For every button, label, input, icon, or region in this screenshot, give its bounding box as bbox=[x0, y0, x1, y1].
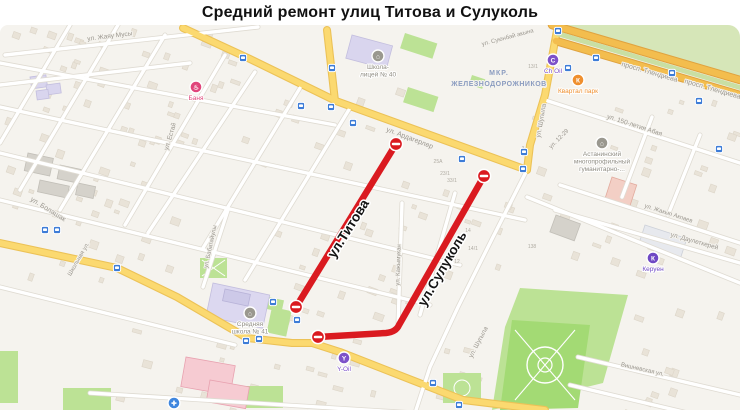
svg-text:⌂: ⌂ bbox=[600, 140, 604, 147]
building bbox=[91, 210, 99, 217]
building bbox=[30, 27, 38, 34]
bus-stop-icon[interactable] bbox=[242, 337, 249, 344]
map-label: ул. 150-летия Абая bbox=[606, 112, 664, 138]
map-label: 25А bbox=[434, 159, 444, 165]
building bbox=[115, 255, 124, 264]
no-entry-icon bbox=[477, 169, 490, 182]
map-label: ул. Суюнбай акына bbox=[481, 27, 535, 48]
bus-stop-icon[interactable] bbox=[458, 155, 465, 162]
building bbox=[651, 391, 660, 398]
green-patch bbox=[400, 33, 437, 59]
building bbox=[365, 229, 374, 237]
building bbox=[338, 291, 346, 300]
building bbox=[711, 100, 717, 107]
building bbox=[353, 339, 362, 345]
poi-keruen-label: Керуен bbox=[642, 266, 664, 273]
building bbox=[642, 348, 650, 356]
building bbox=[645, 157, 653, 165]
building bbox=[99, 277, 105, 283]
map-svg: ул. Ардагерлерпросп. Тлендиевапросп. Тле… bbox=[0, 25, 740, 410]
no-entry-icon bbox=[389, 137, 402, 150]
building bbox=[170, 216, 181, 226]
building bbox=[378, 274, 385, 281]
building bbox=[536, 166, 546, 176]
building bbox=[471, 219, 481, 227]
landmark-building bbox=[36, 89, 49, 100]
poi-school-40-label: Школа- bbox=[367, 64, 389, 71]
building bbox=[317, 311, 325, 317]
svg-text:✚: ✚ bbox=[171, 399, 177, 407]
bus-stop-icon[interactable] bbox=[349, 119, 356, 126]
bus-stop-icon[interactable] bbox=[519, 165, 526, 172]
building bbox=[165, 265, 174, 273]
bus-stop-icon[interactable] bbox=[327, 103, 334, 110]
poi-college-label: многопрофильный bbox=[574, 158, 631, 166]
building bbox=[138, 253, 145, 261]
map-label: 14/1 bbox=[468, 246, 478, 252]
poi-banya-label: Баня bbox=[189, 95, 204, 102]
svg-text:C: C bbox=[551, 57, 556, 64]
building bbox=[667, 109, 673, 115]
map-label: 33/1 bbox=[447, 178, 457, 184]
svg-text:♨: ♨ bbox=[193, 83, 199, 91]
poi-y-oil-label: Y-Oil bbox=[337, 366, 351, 373]
bus-stop-icon[interactable] bbox=[41, 226, 48, 233]
bus-stop-icon[interactable] bbox=[293, 316, 300, 323]
building bbox=[444, 348, 450, 354]
poi-school-41-label: Средняя bbox=[237, 321, 264, 328]
building bbox=[411, 204, 416, 209]
poi-poi-blue-icon[interactable]: ✚ bbox=[168, 397, 180, 409]
building bbox=[592, 243, 601, 249]
building bbox=[230, 79, 240, 86]
bus-stop-icon[interactable] bbox=[715, 145, 722, 152]
building bbox=[12, 31, 21, 39]
roads-layer bbox=[0, 25, 740, 410]
poi-school-41-label: школа № 41 bbox=[232, 329, 269, 336]
building bbox=[181, 132, 189, 138]
building bbox=[495, 264, 501, 271]
bus-stop-icon[interactable] bbox=[554, 27, 561, 34]
page-title: Средний ремонт улиц Титова и Сулуколь bbox=[0, 0, 740, 25]
poi-college-label: Астанинский bbox=[583, 150, 622, 158]
building bbox=[370, 390, 376, 397]
building bbox=[192, 138, 198, 145]
bus-stop-icon[interactable] bbox=[429, 379, 436, 386]
map-canvas[interactable]: ул. Ардагерлерпросп. Тлендиевапросп. Тле… bbox=[0, 25, 740, 410]
poi-kvartal-park-label: Квартал парк bbox=[558, 88, 598, 95]
road bbox=[0, 287, 235, 345]
building bbox=[210, 84, 218, 93]
building bbox=[55, 149, 65, 159]
green-patch bbox=[403, 87, 438, 112]
building bbox=[694, 171, 702, 177]
bus-stop-icon[interactable] bbox=[113, 264, 120, 271]
bus-stop-icon[interactable] bbox=[668, 69, 675, 76]
building bbox=[142, 51, 150, 58]
building bbox=[163, 53, 170, 61]
bus-stop-icon[interactable] bbox=[328, 64, 335, 71]
building bbox=[28, 273, 35, 281]
green-patch bbox=[267, 307, 292, 337]
building bbox=[401, 181, 409, 189]
road bbox=[0, 107, 525, 220]
building bbox=[333, 385, 344, 392]
map-label: ЖЕЛЕЗНОДОРОЖНИКОВ bbox=[450, 81, 546, 88]
bus-stop-icon[interactable] bbox=[564, 64, 571, 71]
no-entry-icon bbox=[289, 300, 302, 313]
building bbox=[60, 66, 67, 72]
poi-banya-icon[interactable]: ♨ bbox=[190, 81, 202, 93]
building bbox=[615, 107, 624, 113]
building bbox=[641, 167, 651, 177]
building bbox=[220, 358, 225, 363]
landmark-building bbox=[38, 180, 70, 198]
district-label: МКР.ЖЕЛЕЗНОДОРОЖНИКОВ bbox=[450, 70, 546, 88]
bus-stop-icon[interactable] bbox=[297, 102, 304, 109]
building bbox=[299, 265, 305, 270]
building bbox=[228, 60, 237, 66]
building bbox=[306, 366, 314, 372]
building bbox=[218, 81, 225, 88]
building bbox=[84, 100, 92, 108]
building bbox=[242, 136, 250, 144]
poi-college-label: гуманитарно-... bbox=[579, 166, 625, 173]
bus-stop-icon[interactable] bbox=[269, 298, 276, 305]
building bbox=[176, 387, 183, 393]
no-entry-icon bbox=[311, 330, 324, 343]
building bbox=[708, 184, 716, 193]
building bbox=[610, 145, 618, 150]
building bbox=[312, 248, 320, 257]
building bbox=[174, 112, 181, 119]
svg-text:⌂: ⌂ bbox=[248, 310, 252, 317]
poi-keruen-icon[interactable]: К bbox=[647, 252, 659, 264]
building bbox=[679, 100, 684, 105]
building bbox=[132, 328, 142, 334]
bus-stop-icon[interactable] bbox=[53, 226, 60, 233]
building bbox=[274, 364, 280, 370]
building bbox=[114, 210, 120, 214]
poi-school-41-icon[interactable]: ⌂ bbox=[244, 307, 256, 319]
poi-ch-oil-label: Ch Oil bbox=[544, 68, 563, 75]
building bbox=[360, 222, 367, 230]
building bbox=[43, 107, 50, 113]
building bbox=[717, 311, 725, 320]
building bbox=[395, 88, 405, 97]
map-label: 23/1 bbox=[440, 171, 450, 177]
screenshot-root: Средний ремонт улиц Титова и Сулуколь ул… bbox=[0, 0, 740, 410]
building bbox=[418, 212, 428, 220]
poi-school-40-label: лицей № 40 bbox=[360, 71, 397, 79]
building bbox=[542, 193, 552, 201]
poi-y-oil-icon[interactable]: Y bbox=[338, 352, 350, 364]
building bbox=[571, 251, 580, 260]
svg-text:К: К bbox=[576, 77, 580, 84]
building bbox=[611, 257, 621, 266]
bus-stop-icon[interactable] bbox=[592, 54, 599, 61]
building bbox=[76, 196, 83, 202]
building bbox=[465, 219, 471, 224]
building bbox=[318, 372, 327, 378]
poi-school-40-icon[interactable]: ⌂ bbox=[372, 50, 384, 62]
building bbox=[67, 33, 74, 41]
building bbox=[675, 309, 685, 319]
building bbox=[365, 125, 375, 131]
building bbox=[725, 246, 737, 256]
building bbox=[59, 261, 65, 267]
poi-ch-oil-icon[interactable]: C bbox=[547, 54, 559, 66]
bus-stop-icon[interactable] bbox=[455, 401, 462, 408]
map-label: МКР. bbox=[489, 70, 509, 77]
svg-text:К: К bbox=[651, 255, 655, 262]
svg-text:⌂: ⌂ bbox=[376, 53, 380, 60]
map-label: 14 bbox=[465, 228, 471, 234]
poi-kvartal-park-icon[interactable]: К bbox=[572, 74, 584, 86]
poi-college-icon[interactable]: ⌂ bbox=[596, 137, 608, 149]
building bbox=[47, 31, 57, 40]
building bbox=[168, 101, 174, 107]
building bbox=[142, 360, 153, 369]
transit-layer bbox=[41, 27, 722, 408]
building bbox=[634, 315, 644, 323]
bus-stop-icon[interactable] bbox=[520, 148, 527, 155]
building bbox=[104, 199, 113, 208]
building bbox=[668, 388, 677, 397]
green-patch bbox=[0, 351, 18, 403]
building bbox=[605, 236, 612, 244]
building bbox=[119, 199, 130, 208]
building bbox=[651, 145, 657, 151]
building bbox=[6, 166, 16, 175]
bus-stop-icon[interactable] bbox=[695, 97, 702, 104]
map-label: ул. Шугыла bbox=[468, 325, 490, 359]
building bbox=[373, 312, 385, 322]
road bbox=[0, 153, 460, 265]
landmark-building bbox=[76, 183, 96, 198]
bus-stop-icon[interactable] bbox=[255, 335, 262, 342]
building bbox=[29, 189, 35, 194]
green-patch bbox=[63, 388, 111, 410]
building bbox=[443, 189, 450, 197]
bus-stop-icon[interactable] bbox=[239, 54, 246, 61]
building bbox=[343, 162, 352, 171]
map-label: 138 bbox=[528, 244, 537, 250]
building bbox=[700, 165, 708, 171]
building bbox=[130, 162, 135, 167]
map-label: 13/1 bbox=[528, 64, 538, 70]
map-label: ул. 12-29 bbox=[548, 128, 570, 150]
svg-text:Y: Y bbox=[342, 355, 347, 362]
